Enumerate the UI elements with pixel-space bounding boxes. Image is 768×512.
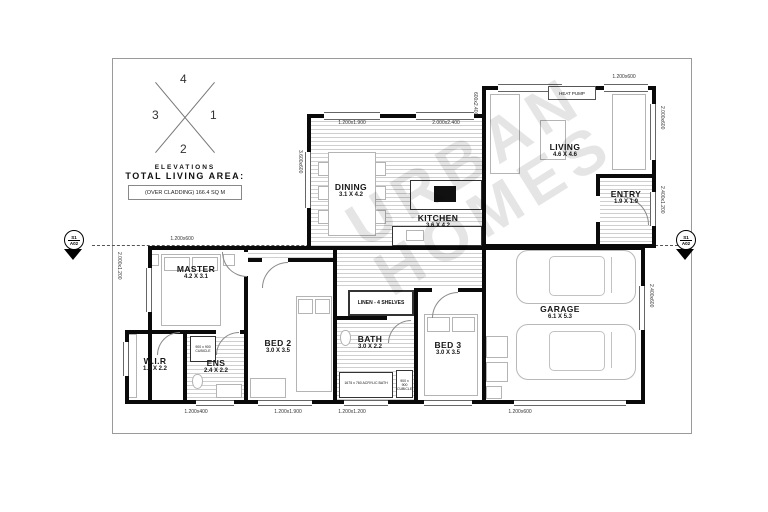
total-living-area-value-box: (OVER CLADDING) 166.4 SQ M (128, 185, 242, 200)
elevations-caption: ELEVATIONS (144, 164, 226, 171)
window (344, 400, 388, 406)
window (639, 286, 645, 330)
wall-segment (244, 276, 248, 404)
elevation-marker: 4 1 2 3 (152, 76, 218, 160)
dimension-label: 600x2.400 (472, 92, 478, 115)
section-marker-left: S1 A02 (64, 230, 84, 250)
garage-door-opening (514, 400, 626, 406)
section-marker-right-arrow-icon (676, 249, 694, 260)
dimension-label: 3.600x600 (297, 150, 303, 173)
window (146, 268, 152, 312)
window (258, 400, 312, 406)
section-marker-right: S1 A02 (676, 230, 696, 250)
window (424, 400, 472, 406)
room-label-bed3: BED 33.0 X 3.5 (434, 340, 461, 356)
room-label-living: LIVING4.6 X 4.6 (550, 142, 581, 158)
room-label-dining: DINING3.1 X 4.2 (335, 182, 367, 198)
dimension-label: 2.000x600 (659, 106, 665, 129)
wall-segment (183, 334, 187, 404)
elevation-number-top: 4 (180, 72, 187, 86)
room-label-bed2: BED 23.0 X 3.5 (264, 338, 291, 354)
window (604, 84, 648, 92)
dimension-label: 1.200x400 (166, 409, 226, 415)
dimension-label: 1.200x600 (152, 236, 212, 242)
window (123, 342, 129, 376)
window (196, 400, 234, 406)
wall-segment (129, 330, 157, 334)
room-label-wir: W.I.R1.8 X 2.2 (143, 356, 167, 372)
front-door-opening (650, 192, 656, 226)
total-living-area-label: TOTAL LIVING AREA: (114, 171, 256, 181)
dimension-label: 1.200x600 (490, 409, 550, 415)
section-marker-left-sheet: A02 (70, 241, 78, 246)
dimension-label: 1.200x600 (594, 74, 654, 80)
dimension-label: 1.200x1.900 (322, 120, 382, 126)
window (305, 152, 311, 208)
linen-label: LINEN - 4 SHELVES (358, 300, 405, 306)
wall-segment (458, 288, 482, 292)
wall-segment (240, 330, 246, 334)
wall-segment (337, 316, 387, 320)
section-marker-left-arrow-icon (64, 249, 82, 260)
window (324, 112, 380, 120)
shower-cubicle: 900 x 900 CUBICLE (396, 370, 413, 398)
window (416, 112, 474, 120)
room-label-entry: ENTRY1.9 X 1.9 (611, 189, 642, 205)
elevation-number-left: 3 (152, 108, 159, 122)
dimension-label: 2.400x600 (648, 284, 654, 307)
dimension-label: 2.400x1.200 (659, 186, 665, 214)
elevation-number-right: 1 (210, 108, 217, 122)
elevation-number-bottom: 2 (180, 142, 187, 156)
total-living-area-value: (OVER CLADDING) 166.4 SQ M (145, 190, 225, 196)
heat-pump-unit: HEAT PUMP (548, 86, 596, 100)
room-label-master: MASTER4.2 X 3.1 (177, 264, 215, 280)
shower-cubicle-label: 900 x 900 CUBICLE (191, 345, 215, 353)
wall-segment (333, 246, 337, 404)
dimension-label: 1.200x1.200 (322, 409, 382, 415)
window (650, 104, 656, 160)
room-label-bath: BATH3.0 X 2.2 (358, 334, 383, 350)
bath-tub-label: 1675 x 760 ACRYLIC BATH (342, 381, 390, 385)
wall-segment (414, 288, 418, 404)
bath-tub: 1675 x 760 ACRYLIC BATH (339, 372, 393, 398)
wall-segment (288, 258, 333, 262)
room-label-kitchen: KITCHEN3.6 X 4.2 (418, 213, 459, 229)
room-label-garage: GARAGE6.1 X 5.3 (540, 304, 580, 320)
wall-segment (418, 288, 432, 292)
shower-cubicle-label: 900 x 900 CUBICLE (397, 379, 412, 391)
kitchen-sink (406, 230, 424, 241)
wall-segment (596, 174, 600, 196)
wall-segment (596, 222, 600, 248)
section-marker-right-sheet: A02 (682, 241, 690, 246)
cooktop (434, 186, 456, 202)
dimension-label: 1.200x1.900 (258, 409, 318, 415)
linen-closet: LINEN - 4 SHELVES (348, 290, 414, 316)
wall-segment (248, 258, 262, 262)
exterior-walls-garage-block (482, 246, 645, 404)
dimension-label: 2.000x1.200 (116, 252, 122, 280)
room-label-ensuite: ENS2.4 X 2.2 (204, 358, 228, 374)
heat-pump-label: HEAT PUMP (559, 91, 585, 96)
floor-plan-canvas: URBAN HOMES 4 1 2 3 ELEVATIONS TOTAL LIV… (0, 0, 768, 512)
wall-segment (596, 174, 656, 178)
dimension-label: 2.000x2.400 (416, 120, 476, 126)
